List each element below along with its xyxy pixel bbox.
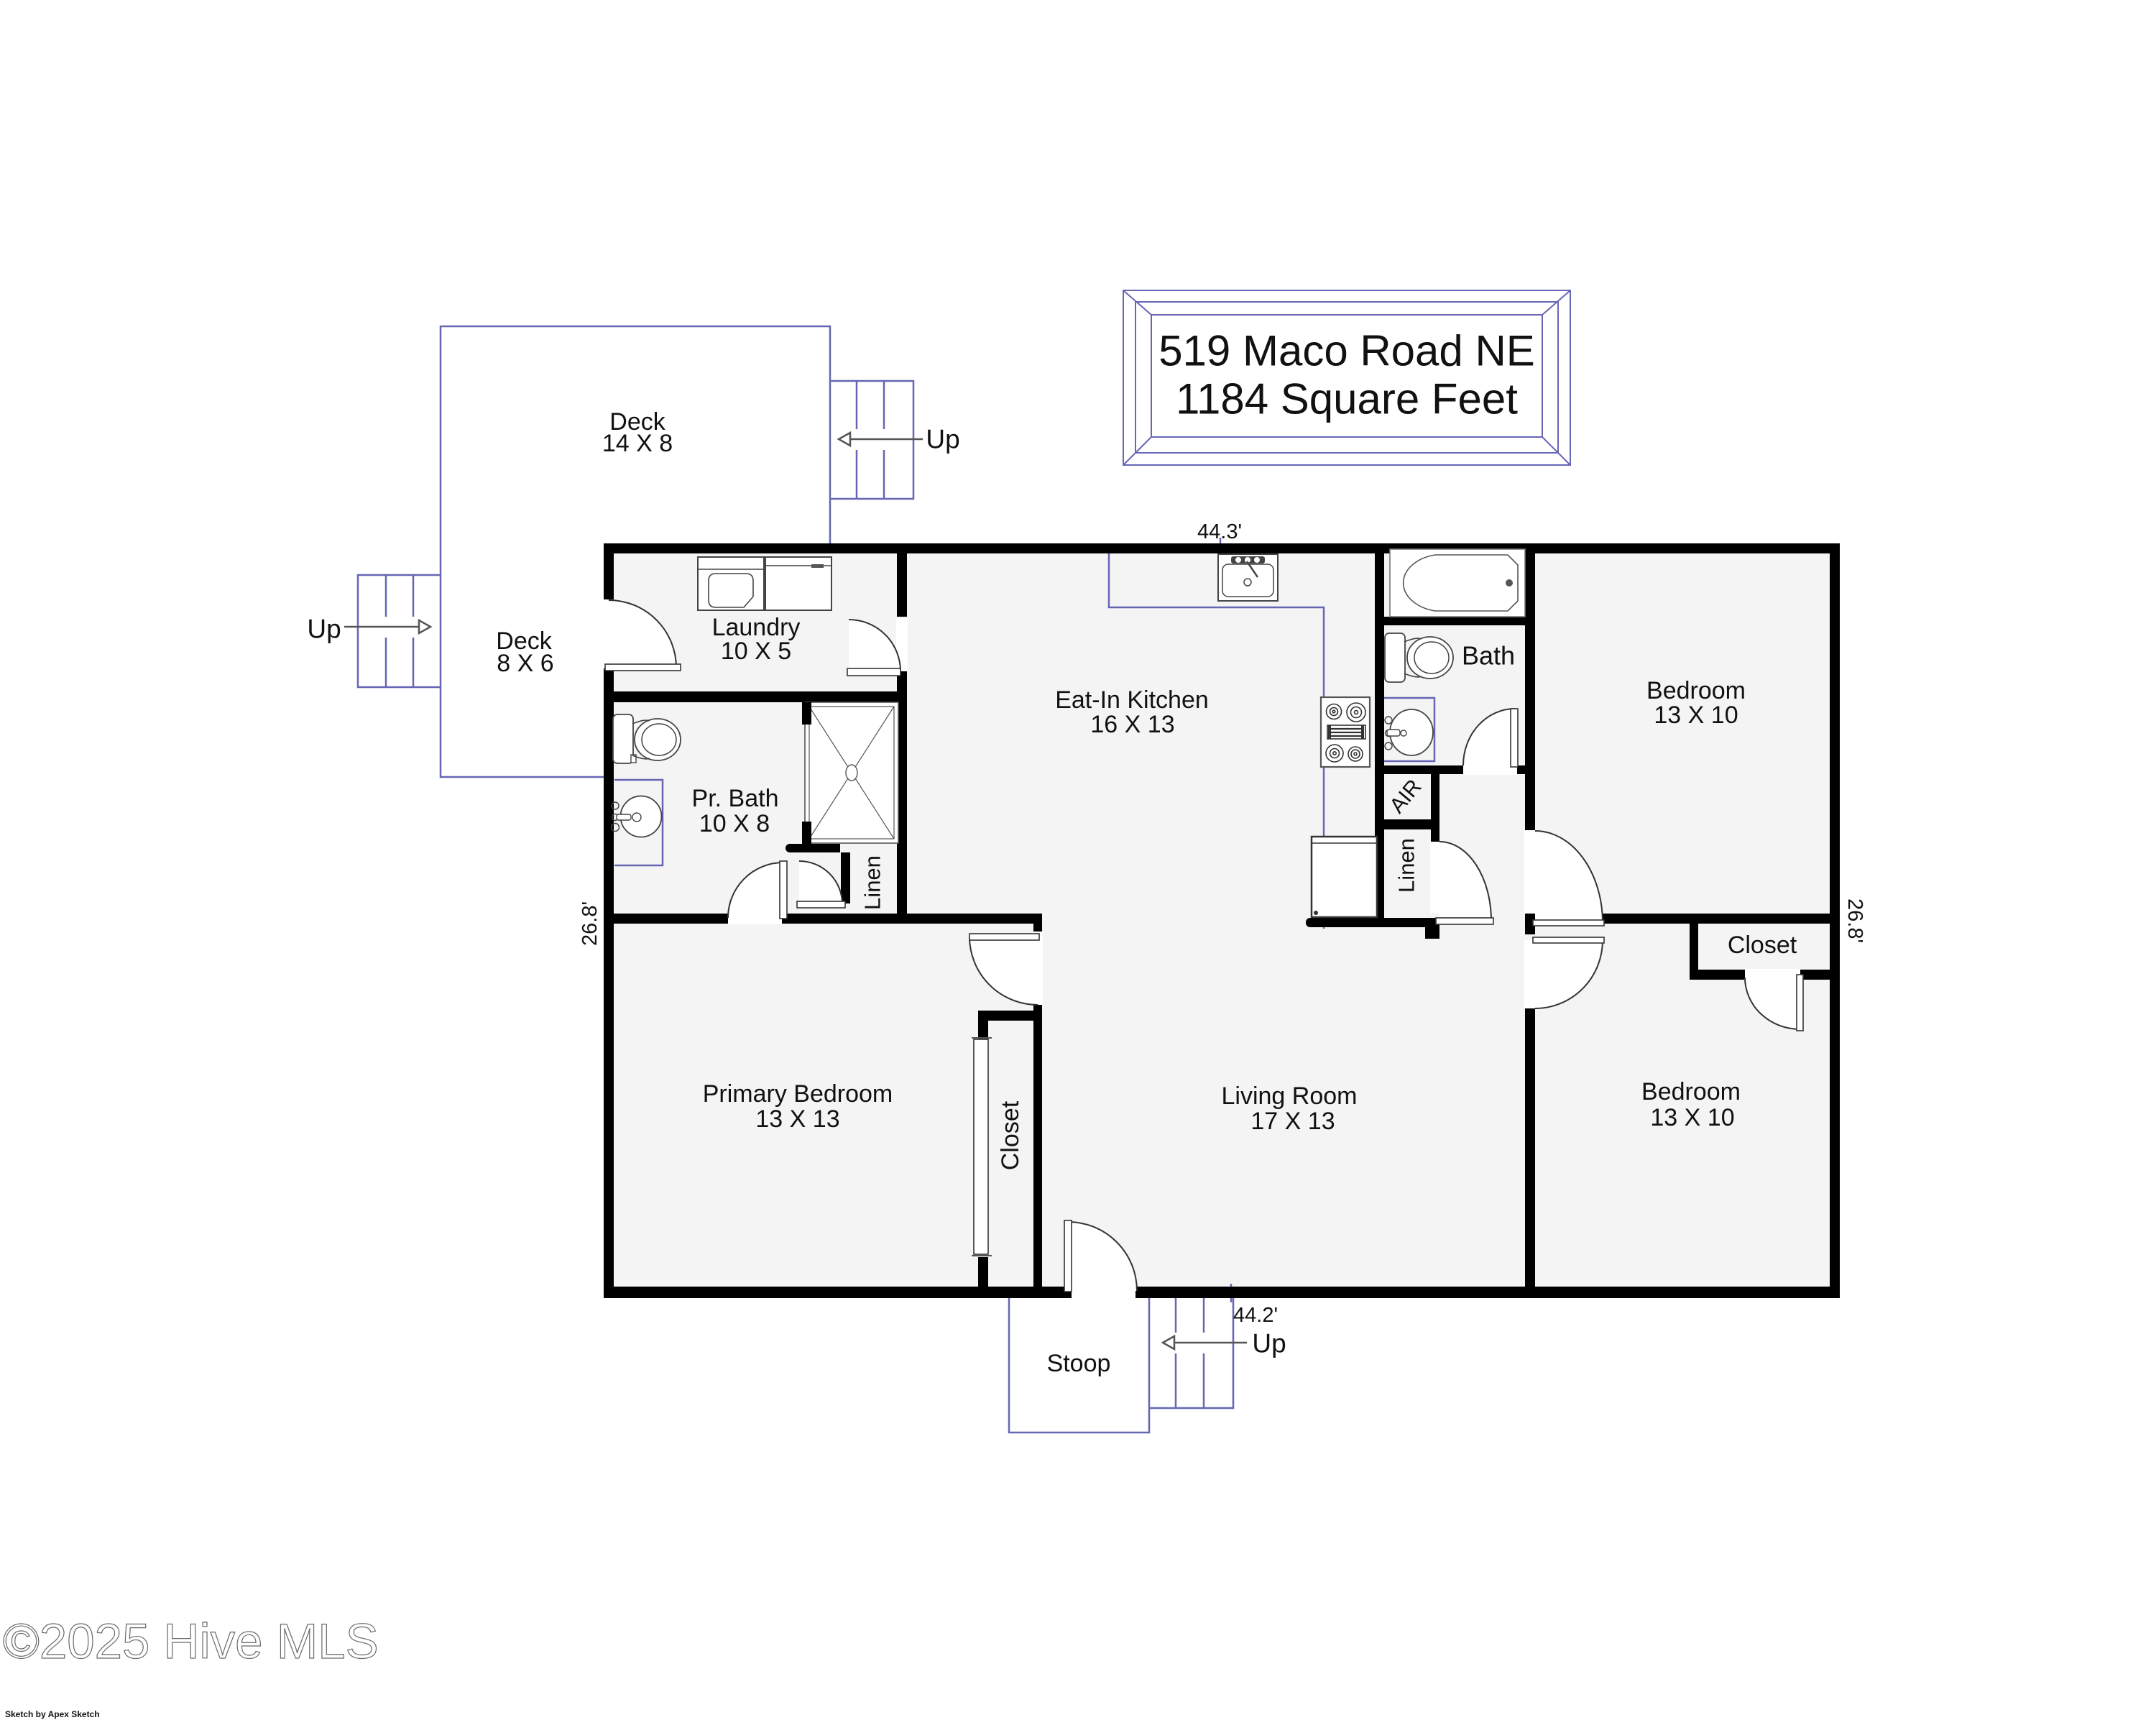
svg-text:26.8': 26.8' (579, 901, 602, 946)
svg-text:©2025 Hive MLS: ©2025 Hive MLS (3, 1614, 379, 1669)
svg-text:Bedroom: Bedroom (1646, 677, 1746, 704)
svg-text:Bedroom: Bedroom (1641, 1078, 1741, 1105)
svg-text:Primary Bedroom: Primary Bedroom (703, 1080, 893, 1108)
svg-text:1184 Square Feet: 1184 Square Feet (1176, 375, 1518, 423)
svg-text:Pr. Bath: Pr. Bath (692, 785, 779, 812)
svg-text:Up: Up (926, 425, 959, 454)
svg-text:13 X 13: 13 X 13 (755, 1105, 839, 1133)
svg-text:Closet: Closet (1728, 932, 1797, 959)
svg-text:Stoop: Stoop (1047, 1350, 1111, 1377)
svg-text:16 X 13: 16 X 13 (1090, 711, 1174, 738)
svg-text:Up: Up (307, 615, 341, 644)
svg-text:17 X 13: 17 X 13 (1250, 1108, 1335, 1135)
svg-text:44.2': 44.2' (1233, 1304, 1278, 1327)
svg-text:Up: Up (1252, 1329, 1286, 1358)
svg-text:13 X 10: 13 X 10 (1650, 1104, 1734, 1131)
svg-text:8 X 6: 8 X 6 (497, 650, 553, 677)
svg-text:Eat-In Kitchen: Eat-In Kitchen (1055, 686, 1209, 714)
svg-text:Linen: Linen (1394, 838, 1419, 893)
svg-text:10 X 5: 10 X 5 (721, 638, 791, 665)
svg-text:Closet: Closet (997, 1100, 1024, 1170)
svg-text:14 X 8: 14 X 8 (602, 430, 673, 457)
svg-text:Living Room: Living Room (1222, 1082, 1358, 1110)
svg-text:Sketch by Apex Sketch: Sketch by Apex Sketch (5, 1709, 100, 1719)
svg-text:Bath: Bath (1462, 641, 1515, 671)
svg-text:13 X 10: 13 X 10 (1654, 702, 1738, 729)
svg-text:44.3': 44.3' (1197, 520, 1242, 543)
svg-text:26.8': 26.8' (1843, 898, 1866, 943)
svg-text:519 Maco Road NE: 519 Maco Road NE (1158, 327, 1535, 375)
svg-text:Linen: Linen (860, 855, 885, 910)
svg-text:10 X 8: 10 X 8 (699, 810, 770, 837)
